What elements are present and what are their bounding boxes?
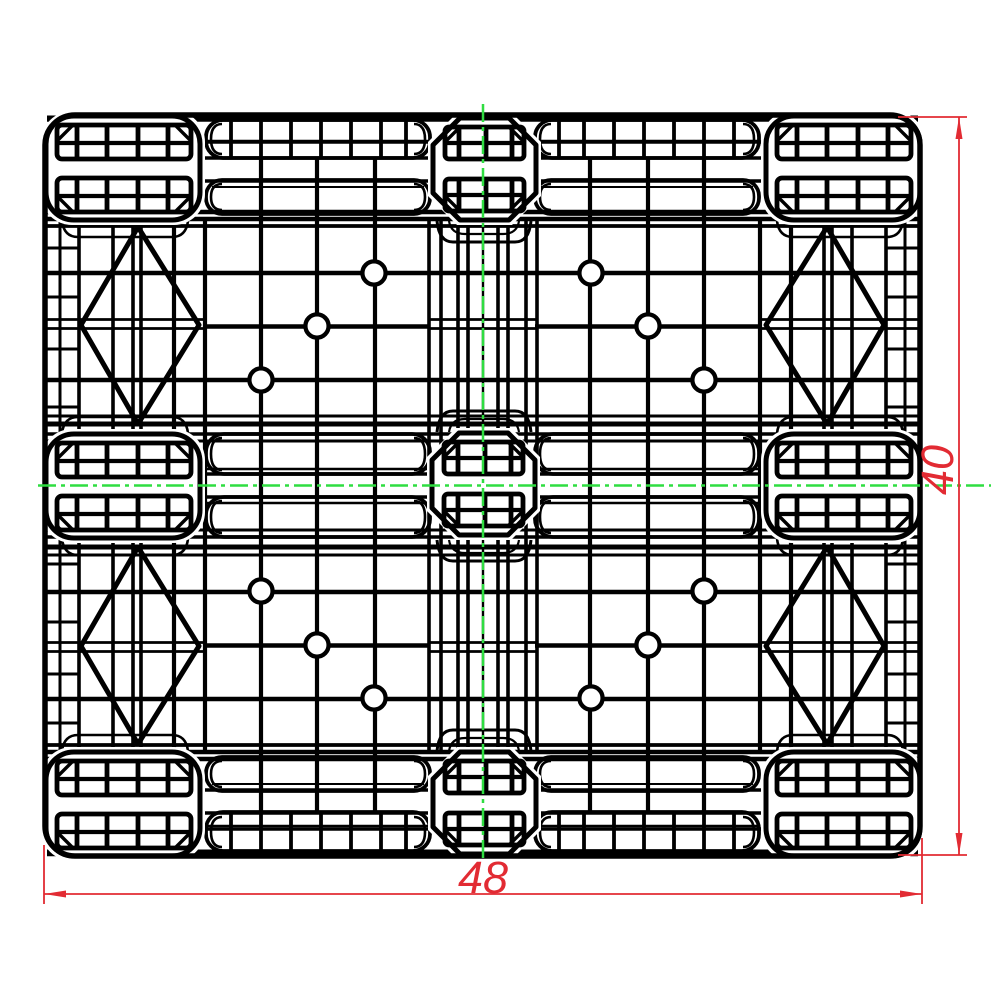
svg-text:40: 40 [912, 445, 963, 495]
svg-text:48: 48 [458, 852, 508, 903]
